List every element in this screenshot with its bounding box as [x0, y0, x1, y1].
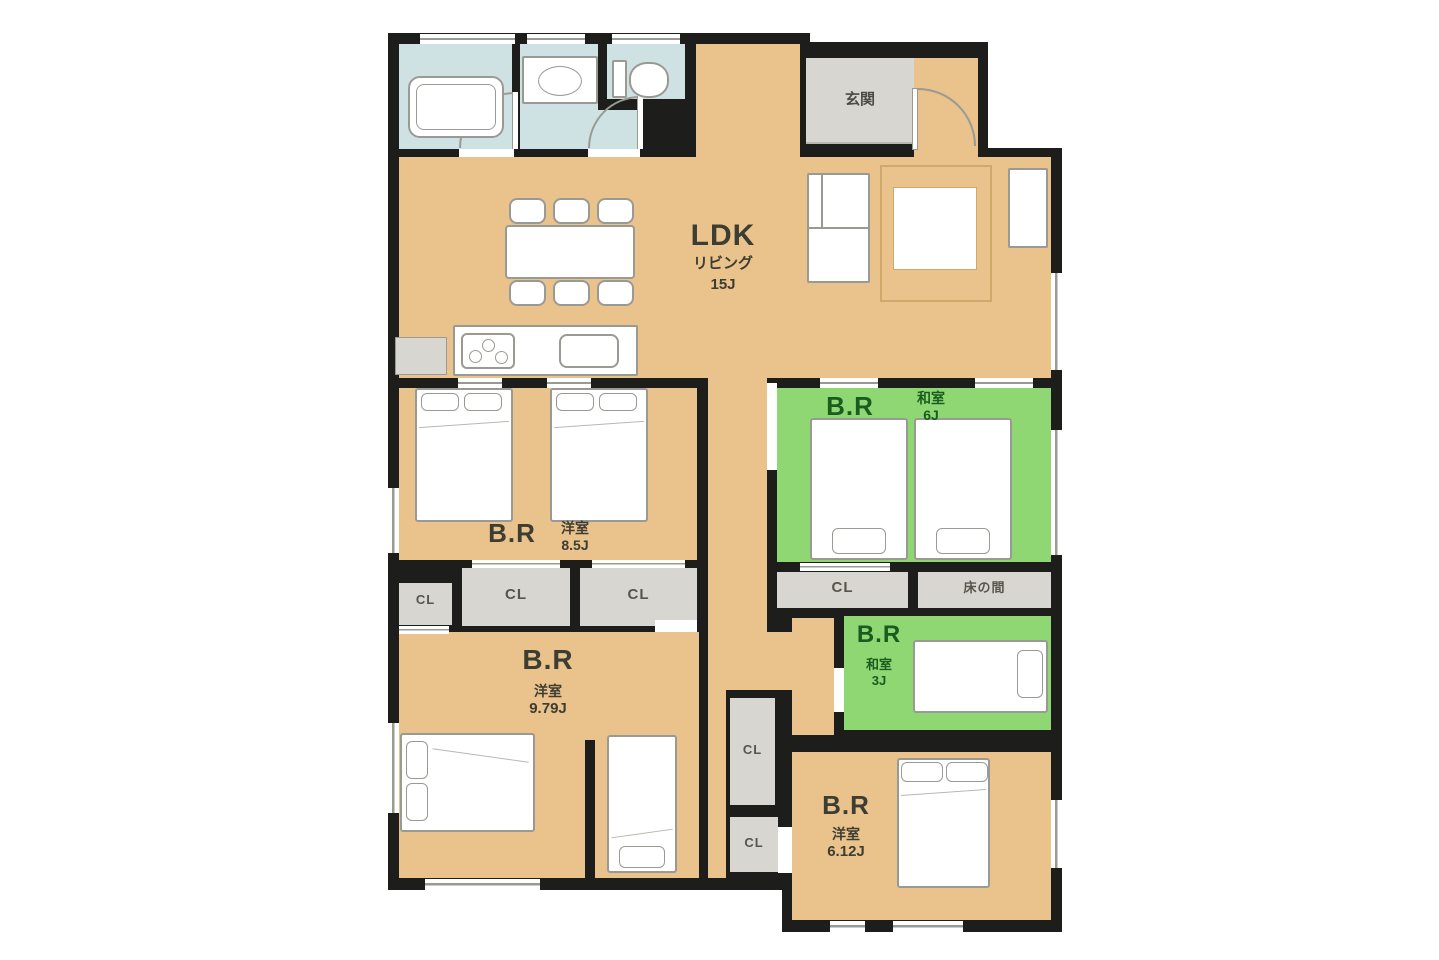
entry-3j-floor	[792, 618, 834, 735]
kitchen-side-unit	[395, 337, 447, 375]
label-entrance: 玄関	[806, 92, 914, 108]
pillow	[464, 393, 502, 411]
label-8-5j-size: 8.5J	[549, 538, 601, 553]
toilet-bowl	[629, 62, 669, 98]
pillow	[901, 762, 943, 782]
label-3j: B.R	[846, 622, 912, 647]
window-6-12j-bottom	[893, 921, 963, 932]
door-6j-gap	[767, 383, 777, 470]
refrigerator	[807, 173, 870, 283]
corridor-floor	[708, 360, 767, 632]
low-table	[893, 187, 977, 270]
label-ldk-sub: リビング	[653, 256, 793, 272]
label-6-12j: B.R	[800, 792, 892, 819]
chair	[597, 198, 634, 224]
bed-fold-line	[419, 421, 509, 428]
label-ldk: LDK	[653, 220, 793, 252]
ldk-top-strip-floor	[696, 44, 800, 160]
floor-plan: LDK リビング 15J 玄関 B.R 和室 6J B.R 洋室 8.5J B.…	[0, 0, 1439, 960]
sliding-door-6j-b	[975, 378, 1033, 388]
window-6-12j-bottom-small	[830, 921, 865, 932]
sliding-door-closet1	[399, 626, 449, 634]
label-6j-size: 6J	[905, 408, 957, 423]
sliding-door-6j-a	[820, 378, 878, 388]
bathtub-inner-line	[416, 84, 496, 130]
kitchen-sink	[559, 334, 619, 368]
refrigerator-line	[809, 227, 868, 229]
door-washroom-gap	[588, 149, 640, 157]
label-3j-sub: 和室	[846, 658, 912, 672]
window-6-12j-right	[1051, 800, 1062, 868]
label-6-12j-size: 6.12J	[800, 844, 892, 860]
window-top-bathroom	[420, 34, 515, 44]
pillow	[406, 741, 428, 779]
chair	[509, 280, 546, 306]
door-3j-gap	[834, 668, 844, 712]
label-3j-size: 3J	[846, 674, 912, 688]
chair	[553, 198, 590, 224]
window-9-79j-left	[388, 723, 399, 813]
label-closet-2: CL	[462, 587, 570, 603]
door-bathroom-gap	[459, 149, 514, 157]
chair	[509, 198, 546, 224]
label-6j-sub: 和室	[905, 391, 957, 406]
label-tokonoma: 床の間	[918, 581, 1051, 595]
bed-fold-line	[611, 829, 673, 839]
label-closet-4: CL	[777, 580, 908, 596]
bed-fold-line	[554, 421, 644, 428]
chair	[597, 280, 634, 306]
pillow	[421, 393, 459, 411]
corridor-branch-floor	[708, 632, 792, 690]
washbasin-bowl	[538, 66, 582, 96]
label-8-5j: B.R	[462, 520, 562, 547]
sliding-door-closet3	[592, 560, 685, 568]
label-closet-5: CL	[730, 743, 775, 757]
label-9-79j-sub: 洋室	[478, 684, 618, 699]
sliding-door-closet2	[472, 560, 560, 568]
label-ldk-size: 15J	[653, 277, 793, 293]
stove-burner-icon	[495, 351, 508, 364]
sliding-door-closet4	[800, 563, 890, 571]
cabinet	[1008, 168, 1048, 248]
sliding-door-8-5j-a	[458, 378, 502, 388]
bathtub	[408, 76, 504, 138]
sliding-door-8-5j-b	[547, 378, 591, 388]
chair	[553, 280, 590, 306]
dining-table	[505, 225, 635, 279]
window-6j-right	[1051, 430, 1062, 555]
stove-burner-icon	[469, 350, 482, 363]
toilet-tank	[612, 60, 627, 98]
window-top-washroom	[527, 34, 585, 44]
pillow	[619, 846, 665, 868]
label-closet-6: CL	[730, 836, 778, 850]
window-9-79j-bottom	[425, 879, 540, 890]
pillow	[599, 393, 637, 411]
bed-fold-line	[432, 748, 528, 762]
pillow	[556, 393, 594, 411]
label-9-79j-size: 9.79J	[478, 701, 618, 717]
pillow	[946, 762, 988, 782]
pillow	[832, 528, 886, 554]
pillow	[1017, 650, 1043, 698]
window-8-5j-left	[388, 488, 399, 553]
door-leaf-washroom	[637, 96, 643, 149]
label-6j: B.R	[800, 393, 900, 420]
window-ldk-right	[1051, 273, 1062, 370]
wall-bed-divider	[585, 740, 595, 878]
door-leaf-bathroom	[512, 92, 518, 149]
kitchen-stove	[461, 333, 515, 369]
door-6-12j-gap	[778, 827, 792, 873]
window-top-toilet	[612, 34, 680, 44]
refrigerator-line	[821, 175, 823, 227]
label-6-12j-sub: 洋室	[800, 827, 892, 842]
label-closet-1: CL	[399, 593, 452, 607]
pillow	[406, 783, 428, 821]
bed-fold-line	[901, 789, 986, 796]
door-9-79j-gap	[655, 620, 697, 632]
stove-burner-icon	[482, 339, 495, 352]
label-9-79j: B.R	[478, 645, 618, 674]
label-8-5j-sub: 洋室	[549, 521, 601, 536]
label-closet-3: CL	[580, 587, 697, 603]
pillow	[936, 528, 990, 554]
